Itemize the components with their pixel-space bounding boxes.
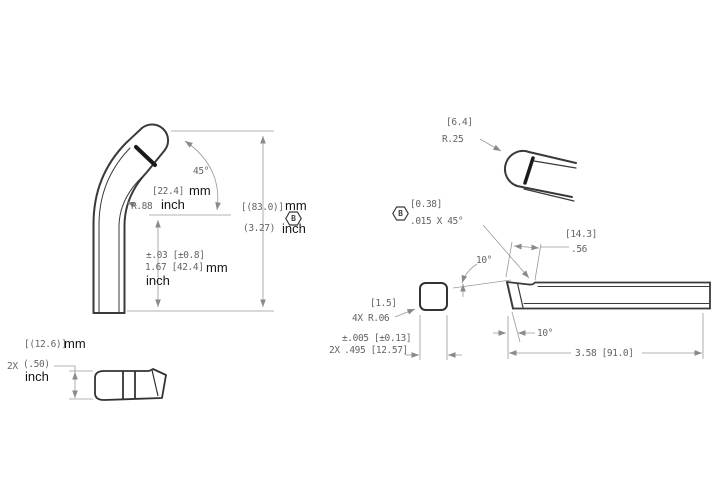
datum-b-letter: B — [392, 207, 409, 220]
overall-height-in: (3.27) — [243, 223, 275, 234]
corner-radius-mm: [1.5] — [370, 298, 397, 309]
chamfer-leader — [483, 225, 529, 278]
end-width-val: .495 [12.57] — [344, 345, 408, 356]
tip-radius-mm: [6.4] — [446, 117, 473, 128]
overall-height-mm: [(83.0)] — [241, 202, 284, 213]
bend-angle-label: 45° — [193, 166, 209, 177]
datum-b-symbol-right: B — [392, 206, 409, 221]
rake-length-in: .56 — [571, 244, 587, 255]
detail-braze-line — [525, 158, 533, 183]
straight-height-val: 1.67 [42.4] — [145, 262, 204, 273]
profile-view-outline — [95, 369, 166, 400]
top-rake-angle: 10° — [476, 255, 492, 266]
straight-height-in-unit: inch — [146, 274, 170, 288]
profile-height-mm: [(12.6)] — [24, 339, 67, 350]
bar-end-outline — [420, 283, 447, 310]
tip-detail-dimensions — [480, 139, 501, 151]
bar-side-outline — [507, 282, 710, 309]
corner-radius-leader — [395, 309, 415, 317]
rake-length-mm: [14.3] — [565, 229, 597, 240]
profile-height-in-unit: inch — [25, 370, 49, 384]
braze-joint-line — [136, 147, 155, 165]
top-rake-ref-line — [453, 280, 511, 288]
profile-view-dimensions — [54, 366, 93, 399]
front-clearance-angle: 10° — [537, 328, 553, 339]
overall-height-in-unit: inch — [282, 222, 306, 236]
bend-radius-mm-unit: mm — [189, 184, 211, 198]
straight-height-mm-unit: mm — [206, 261, 228, 275]
chamfer-in: .015 X 45° — [410, 216, 463, 227]
overall-length: 3.58 [91.0] — [575, 348, 634, 359]
chamfer-mm: [0.38] — [410, 199, 442, 210]
drawing-linework — [0, 0, 721, 492]
profile-height-mm-unit: mm — [64, 337, 86, 351]
front-face-edge — [507, 282, 513, 309]
profile-height-qty: 2X — [7, 361, 18, 372]
bend-radius-mm: [22.4] — [152, 186, 184, 197]
tip-radius-in: R.25 — [442, 134, 463, 145]
bend-radius-in-unit: inch — [161, 198, 185, 212]
end-width-tol: ±.005 [±0.13] — [342, 333, 411, 344]
end-width-qty: 2X — [329, 345, 340, 356]
corner-radius-in: 4X R.06 — [352, 313, 389, 324]
bend-radius-in: R.88 — [131, 201, 152, 212]
straight-height-tol: ±.03 [±0.8] — [146, 250, 205, 261]
front-angle-ref-line — [512, 312, 520, 342]
tip-radius-leader — [480, 139, 501, 151]
tube-tip-cap — [142, 124, 168, 150]
engineering-drawing: 45° [22.4] mm R.88 inch ±.03 [±0.8] 1.67… — [0, 0, 721, 492]
tip-detail-outline — [505, 151, 576, 201]
